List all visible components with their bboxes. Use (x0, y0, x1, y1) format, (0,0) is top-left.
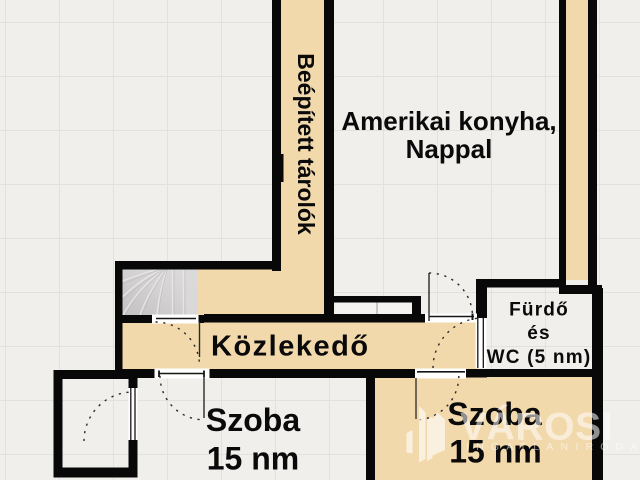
svg-text:és: és (527, 323, 551, 344)
svg-text:Beépített tárolók: Beépített tárolók (293, 53, 319, 235)
svg-text:Amerikai konyha,: Amerikai konyha, (341, 106, 556, 136)
svg-text:15 nm: 15 nm (207, 441, 299, 477)
svg-text:Közlekedő: Közlekedő (211, 331, 370, 363)
svg-text:Nappal: Nappal (406, 134, 493, 164)
svg-text:WC (5 nm): WC (5 nm) (487, 347, 592, 368)
svg-text:Fürdő: Fürdő (509, 300, 569, 321)
svg-text:INGATLANIRODA: INGATLANIRODA (466, 441, 640, 453)
svg-text:Szoba: Szoba (206, 402, 300, 438)
